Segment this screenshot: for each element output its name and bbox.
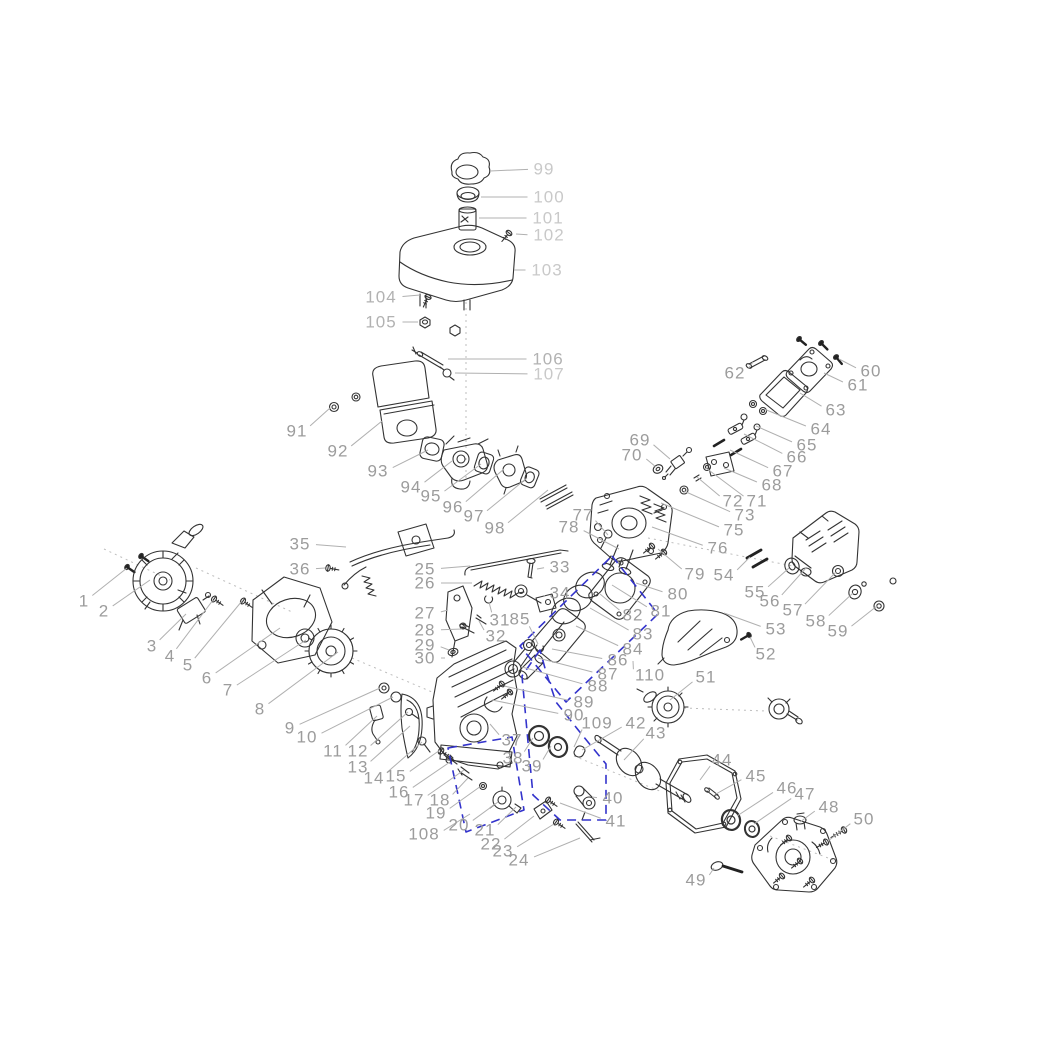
part-label-103: 103 [531,261,562,280]
leader-line-61 [824,373,843,382]
leader-line-19 [450,786,481,808]
tube-clip-107-drawing [440,367,454,380]
leader-line-4 [176,600,213,649]
dotted-guide-6 [574,756,662,792]
leader-line-102 [516,234,528,235]
fan-cover-drawing [252,577,332,663]
crankcase-cover-48-drawing [752,817,837,892]
leader-line-84 [576,626,618,646]
leader-line-47 [754,799,791,824]
part-label-51: 51 [696,668,717,687]
part-label-102: 102 [533,226,564,245]
dotted-guide-5 [684,708,766,711]
valve-springs-75-drawing [640,496,666,522]
leader-line-7 [237,640,306,685]
kill-switch-drawing [369,705,383,744]
leader-line-99 [490,169,528,171]
part-label-61: 61 [848,376,869,395]
leader-line-33 [537,568,544,569]
pushrod-plate-68-drawing [706,452,734,476]
leader-line-28 [441,629,462,630]
crank-key-42-drawing [574,746,585,757]
part-label-7: 7 [223,681,233,700]
part-label-10: 10 [297,728,318,747]
dotted-guide-2 [196,568,292,612]
leader-line-66 [744,434,782,453]
part-label-14: 14 [364,769,385,788]
carburetor-drawing [441,436,488,489]
part-label-43: 43 [646,724,667,743]
leader-line-40 [592,797,597,798]
leader-line-95 [444,464,481,491]
part-label-8: 8 [255,700,265,719]
part-label-40: 40 [603,789,624,808]
leader-line-87 [538,658,592,672]
part-label-20: 20 [449,816,470,835]
part-label-82: 82 [623,606,644,625]
part-label-45: 45 [746,767,767,786]
part-label-11: 11 [323,742,343,761]
part-label-107: 107 [533,365,564,384]
part-label-110: 110 [635,666,665,685]
oil-seal-46-drawing [720,808,743,832]
leader-line-2 [113,580,150,606]
starter-ratchet-drawing [379,683,401,702]
leader-line-63 [800,393,822,406]
part-label-57: 57 [783,601,804,620]
leader-line-37 [490,724,499,735]
bolt-36-drawing [325,564,339,573]
cover-bolt-50b-drawing [779,834,793,847]
engine-exploded-view: 1234567891011121314151617181920212223242… [0,0,1039,1039]
leader-line-64 [764,409,806,426]
part-label-17: 17 [404,791,425,810]
leader-line-44 [700,766,710,780]
valve-cover-61-drawing [786,348,832,393]
rocker-pivots-65-drawing [741,414,760,435]
leader-line-43 [624,739,644,760]
leader-line-107 [455,373,528,374]
leader-line-36 [316,568,325,569]
part-label-91: 91 [287,422,308,441]
part-label-47: 47 [795,785,816,804]
leader-line-56 [782,568,806,595]
cover-screw-60a-drawing [796,336,808,347]
part-label-19: 19 [426,804,447,823]
oil-seal-47-drawing [743,819,761,838]
fuel-strainer-drawing [457,187,479,202]
muffler-washers-drawing [833,566,897,612]
leader-line-29 [441,647,449,650]
leader-line-55 [768,568,789,587]
pin-32-drawing [476,615,486,624]
exploded-parts-diagram: 1234567891011121314151617181920212223242… [0,0,1039,1039]
leader-line-53 [724,613,761,626]
cover-screw-60b-drawing [818,340,830,352]
leader-line-75 [661,503,719,527]
cover-bolt-50c-drawing [790,857,804,870]
part-label-108: 108 [408,825,439,844]
part-label-3: 3 [147,637,157,656]
leader-line-52 [750,637,755,647]
cover-screw-5-drawing [239,597,253,610]
part-label-44: 44 [712,751,733,770]
cover-screw-60c-drawing [833,354,844,366]
clip-31-drawing [485,596,493,603]
leader-line-15 [410,750,440,771]
leader-line-1 [92,568,127,596]
main-bearing-38-drawing [529,726,549,746]
part-label-37: 37 [502,731,523,750]
part-label-4: 4 [165,647,175,666]
tank-nuts-105-drawing [420,317,460,336]
leader-line-67 [730,450,768,468]
part-label-62: 62 [725,364,746,383]
cover-bolt-50e-drawing [802,876,816,889]
leader-line-46 [737,792,773,816]
part-label-32: 32 [486,627,507,646]
leader-line-6 [216,628,280,673]
leader-line-3 [160,614,186,640]
rod-bolt-89b-drawing [500,688,514,701]
part-label-36: 36 [290,560,311,579]
part-label-105: 105 [365,313,396,332]
part-label-5: 5 [183,656,193,675]
leader-line-92 [351,421,382,446]
exhaust-studs-54-drawing [747,550,767,567]
fuel-cap-drawing [451,153,490,185]
part-label-34: 34 [550,584,571,603]
part-label-81: 81 [651,602,672,621]
ignition-coil-drawing [177,593,211,631]
air-cleaner-drawing [373,361,436,443]
leader-line-65 [756,426,792,442]
part-label-33: 33 [550,558,571,577]
starter-handle-drawing [172,522,205,548]
leader-line-22 [504,816,534,839]
part-label-49: 49 [686,871,707,890]
leader-line-76 [652,527,703,545]
governor-gear-drawing [768,698,803,725]
part-label-93: 93 [368,462,389,481]
leader-line-69 [654,445,670,459]
drain-bolt-49-drawing [710,860,742,872]
leader-line-35 [316,545,346,547]
leader-line-5 [195,601,242,658]
part-label-95: 95 [421,487,442,506]
leader-line-8 [268,652,338,704]
head-bolt-79a-drawing [642,542,656,555]
part-label-26: 26 [415,574,436,593]
leader-line-54 [737,557,750,570]
leader-line-91 [310,408,330,426]
rod-cap-90-drawing [484,697,502,712]
bolt-33-drawing [527,559,535,579]
part-label-75: 75 [724,521,745,540]
leader-line-98 [508,490,548,523]
leader-line-77 [595,521,608,535]
cover-screw-4-drawing [210,595,224,608]
leader-line-104 [402,295,420,297]
part-label-50: 50 [854,810,875,829]
rod-bolt-89-drawing [492,680,506,693]
part-label-96: 96 [443,498,464,517]
oil-slinger-20-drawing [490,787,517,813]
shield-bolt-52-drawing [740,632,752,642]
part-label-94: 94 [401,478,422,497]
leader-line-9 [300,688,380,724]
part-label-58: 58 [806,612,827,631]
side-shroud-drawing [401,694,422,758]
part-label-42: 42 [626,714,647,733]
leader-line-86 [552,649,602,659]
breather-pipe-62-drawing [745,355,768,369]
part-label-104: 104 [365,288,396,307]
leader-line-45 [716,780,741,794]
part-label-53: 53 [766,620,787,639]
fuel-tank-drawing [399,225,515,310]
recoil-starter-drawing [133,551,193,611]
rod-24-drawing [576,822,600,842]
leader-line-50 [828,824,850,841]
part-label-97: 97 [464,507,485,526]
part-label-85: 85 [510,610,531,629]
part-label-56: 56 [760,592,781,611]
part-label-98: 98 [485,519,506,538]
leader-line-23 [517,824,554,847]
part-label-38: 38 [503,749,524,768]
leader-line-25 [441,566,470,568]
leader-line-24 [534,838,580,857]
leader-line-58 [829,593,853,616]
intake-gasket-97-drawing [519,466,540,489]
fuel-tube-106-drawing [412,347,443,368]
part-label-2: 2 [99,602,109,621]
leader-line-79 [658,549,682,569]
dotted-guide-1 [104,549,170,580]
part-label-92: 92 [328,442,349,461]
part-label-52: 52 [756,645,777,664]
part-label-79: 79 [685,565,706,584]
rocker-arms-66-drawing [727,423,756,445]
cover-bolt-50d-drawing [772,872,786,885]
part-label-99: 99 [534,160,555,179]
part-label-1: 1 [79,592,89,611]
spark-plug-drawing [663,448,692,480]
part-label-76: 76 [708,539,729,558]
spring-retainers-drawing [680,464,711,495]
leader-line-20 [473,802,498,820]
leader-line-18 [453,778,468,794]
governor-arm-27-drawing [446,586,472,657]
part-label-48: 48 [819,798,840,817]
leader-line-94 [425,461,452,482]
leader-line-93 [393,450,428,468]
part-label-30: 30 [415,649,436,668]
control-assembly-35-drawing [342,524,454,596]
part-label-9: 9 [285,719,295,738]
wing-nut-91-drawing [330,393,361,412]
intake-studs-98-drawing [540,485,573,509]
part-label-59: 59 [828,622,849,641]
leader-line-81 [612,585,647,607]
leader-line-21 [498,807,516,825]
leader-line-97 [487,478,527,511]
leader-line-72 [697,477,720,496]
part-label-6: 6 [202,669,212,688]
part-label-35: 35 [290,535,311,554]
part-label-109: 109 [581,714,612,733]
leader-line-68 [724,468,757,482]
part-label-41: 41 [606,812,627,831]
part-label-78: 78 [559,518,580,537]
leader-line-70 [646,459,656,467]
part-label-54: 54 [714,566,735,585]
part-label-100: 100 [533,188,564,207]
insulator-96-drawing [494,446,527,494]
part-label-63: 63 [826,401,847,420]
cover-bolt-50a-drawing [815,838,830,850]
part-label-70: 70 [622,446,643,465]
pin-17-drawing [461,767,469,773]
part-label-39: 39 [522,757,543,776]
part-label-24: 24 [509,851,530,870]
leader-line-59 [851,606,877,626]
